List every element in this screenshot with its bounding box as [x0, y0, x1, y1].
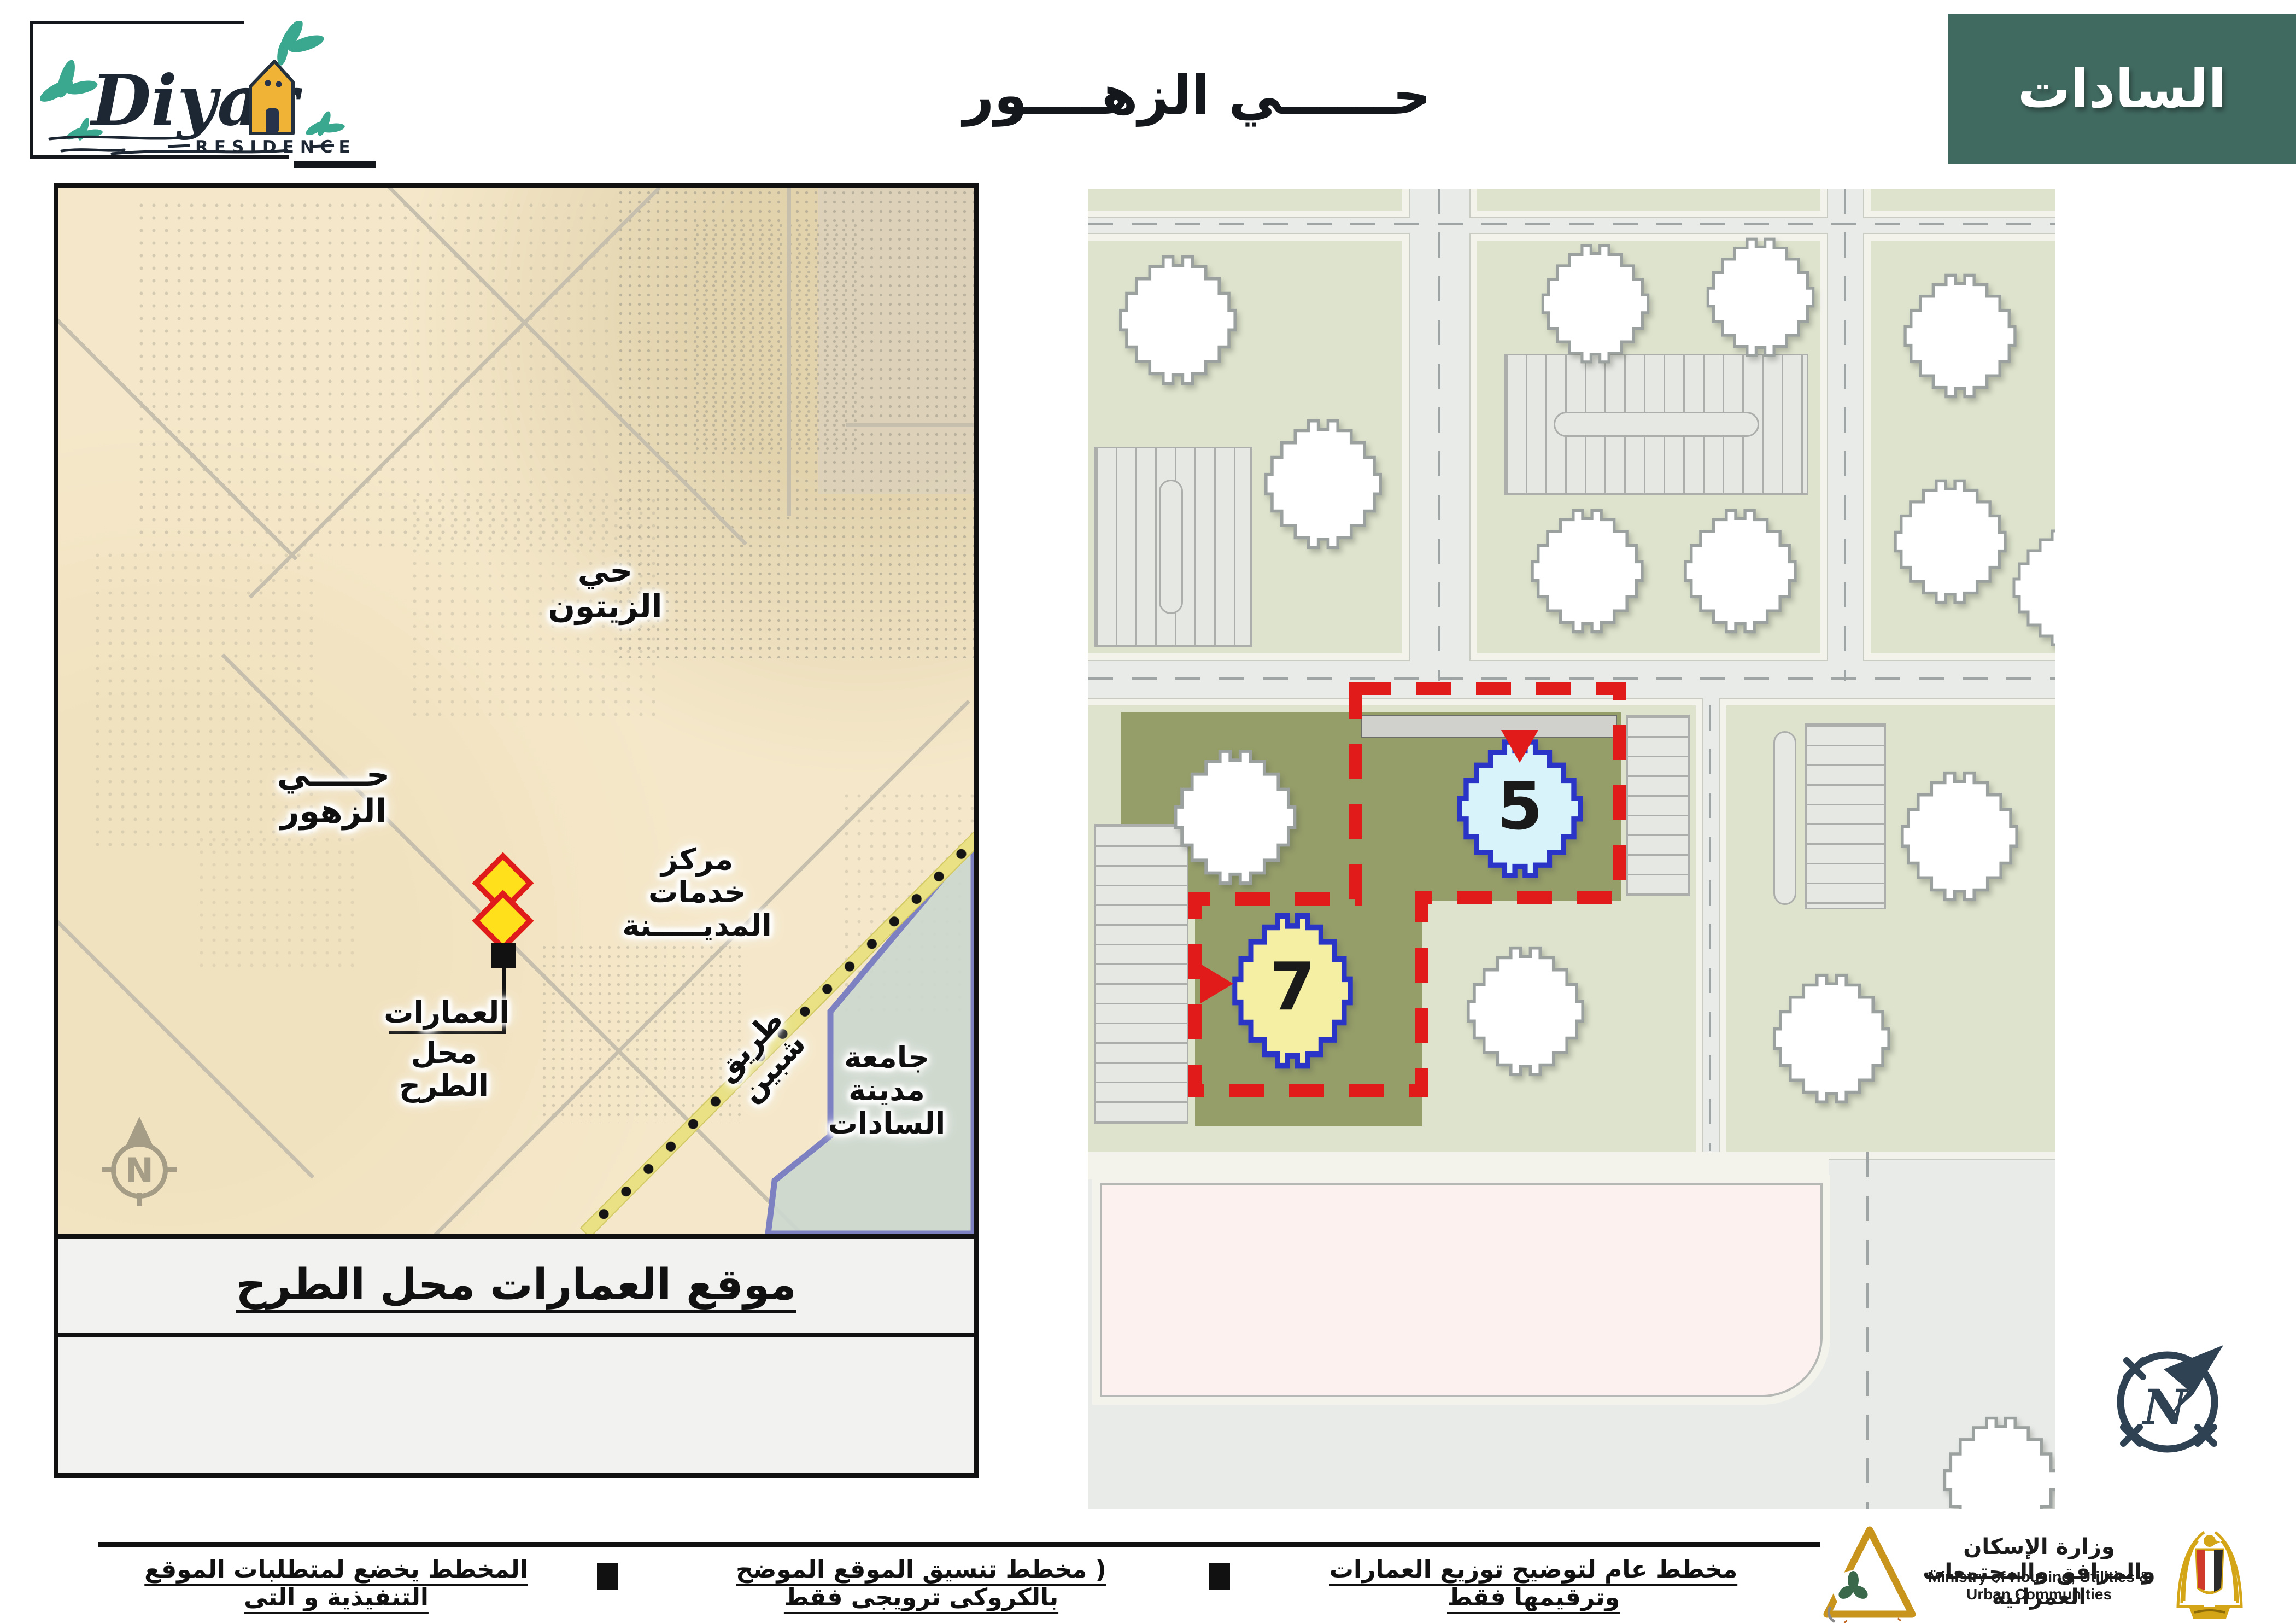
label-university-l3: السادات — [818, 1107, 955, 1140]
footer-bullet — [597, 1563, 618, 1590]
logo-frame-accent — [294, 161, 376, 168]
city-badge-label: السادات — [2018, 59, 2226, 120]
map-compass-letter: N — [125, 1150, 154, 1190]
label-zaytoun-l1: حي — [537, 553, 673, 589]
label-offered-l1: العمارات — [378, 996, 515, 1029]
logo-frame-bottom — [30, 155, 289, 159]
city-badge: السادات — [1948, 14, 2296, 164]
footer-note-promo: ( مخطط تنسيق الموقع الموضح بالكروكى تروي… — [694, 1556, 1148, 1624]
satellite-map: حي الزيتون حـــــي الزهور مركز خدمات الم… — [58, 188, 974, 1234]
label-zohour-l1: حـــــي — [265, 757, 402, 793]
footer-note-promo-l2: ولايعتد به كرسومات لتنسيق الموقع) — [694, 1621, 1148, 1624]
footer-note-promo-l1: ( مخطط تنسيق الموقع الموضح بالكروكى تروي… — [694, 1556, 1148, 1611]
roof-leaf-icon — [276, 21, 326, 66]
legend-title-row: موقع العمارات محل الطرح — [58, 1234, 974, 1337]
plan-block-south — [1100, 1183, 1823, 1397]
footer-note-general-l2: ( ولا يعتد به فى غير ذلك ) — [1307, 1621, 1760, 1624]
label-zaytoun: حي الزيتون — [537, 553, 673, 624]
offered-l2-text: محل الطرح — [370, 1037, 518, 1103]
footer-note-exec-l1: المخطط يخضع لمتطلبات الموقع التنفيذية و … — [115, 1556, 558, 1611]
site-plan: 5 7 — [1088, 189, 2055, 1509]
plan-compass-letter: N — [2141, 1378, 2189, 1435]
brand-logo-art: Diyar RESIDENCE — [30, 21, 354, 159]
label-zohour: حـــــي الزهور — [265, 757, 402, 830]
offered-l1-text: العمارات — [378, 996, 515, 1029]
label-services-center: مركز خدمات المديـــــنة — [615, 843, 779, 942]
label-university: جامعة مدينة السادات — [818, 1041, 955, 1140]
brand-subtitle: RESIDENCE — [195, 137, 354, 157]
egypt-eagle-icon — [2166, 1527, 2253, 1621]
entrance-arrow-5 — [1501, 730, 1538, 763]
building-footprint — [1941, 1415, 2055, 1509]
brand-subtitle-group: RESIDENCE — [168, 137, 354, 157]
map-compass-tick — [137, 1193, 142, 1206]
label-zohour-l2: الزهور — [265, 793, 402, 830]
callout-line — [389, 1031, 506, 1034]
page: Diyar RESIDENCE — [0, 0, 2296, 1624]
map-compass-icon: N — [102, 1118, 179, 1200]
entrance-arrow-7 — [1200, 964, 1233, 1003]
label-services-l1: مركز خدمات — [615, 843, 779, 909]
footer-note-general: مخطط عام لتوضيح توزيع العمارات وترقيمها … — [1307, 1556, 1760, 1624]
label-university-l1: جامعة — [818, 1041, 955, 1074]
brand-logo: Diyar RESIDENCE — [30, 21, 354, 159]
footer-note-exec: المخطط يخضع لمتطلبات الموقع التنفيذية و … — [115, 1556, 558, 1624]
label-zaytoun-l2: الزيتون — [537, 589, 673, 624]
label-university-l2: مدينة — [818, 1074, 955, 1107]
footer-bullet — [1209, 1563, 1230, 1590]
location-map-panel: حي الزيتون حـــــي الزهور مركز خدمات الم… — [54, 183, 979, 1478]
developer-logo-icon — [1821, 1524, 1917, 1623]
page-title: حــــــي الزهــــور — [929, 65, 1465, 127]
legend-models-row: نموذج B 3 2 4 1 نموذج A 3 2 4 1 — [58, 1337, 974, 1473]
label-offered-l2: محل الطرح — [370, 1037, 518, 1103]
footer-note-general-l1: مخطط عام لتوضيح توزيع العمارات وترقيمها … — [1307, 1556, 1760, 1611]
ministry-name-en: Ministry of Housing, Utilities & Urban C… — [1911, 1568, 2168, 1603]
grass-icon — [304, 110, 345, 138]
map-compass-circle: N — [111, 1142, 168, 1199]
map-compass-tick — [163, 1167, 177, 1172]
logo-frame-top — [30, 21, 244, 24]
footer-divider — [98, 1542, 1820, 1547]
plan-compass-icon: N — [2111, 1341, 2229, 1458]
legend-title: موقع العمارات محل الطرح — [58, 1260, 974, 1310]
map-compass-tick — [102, 1167, 115, 1172]
footer-note-exec-l2: قد تؤدى إلى حدوث تعديلات به — [115, 1621, 558, 1624]
offered-marker-base — [491, 943, 516, 968]
sidewalk — [1088, 1152, 1829, 1179]
label-services-l2: المديـــــنة — [615, 909, 779, 942]
logo-frame-left — [30, 21, 33, 159]
